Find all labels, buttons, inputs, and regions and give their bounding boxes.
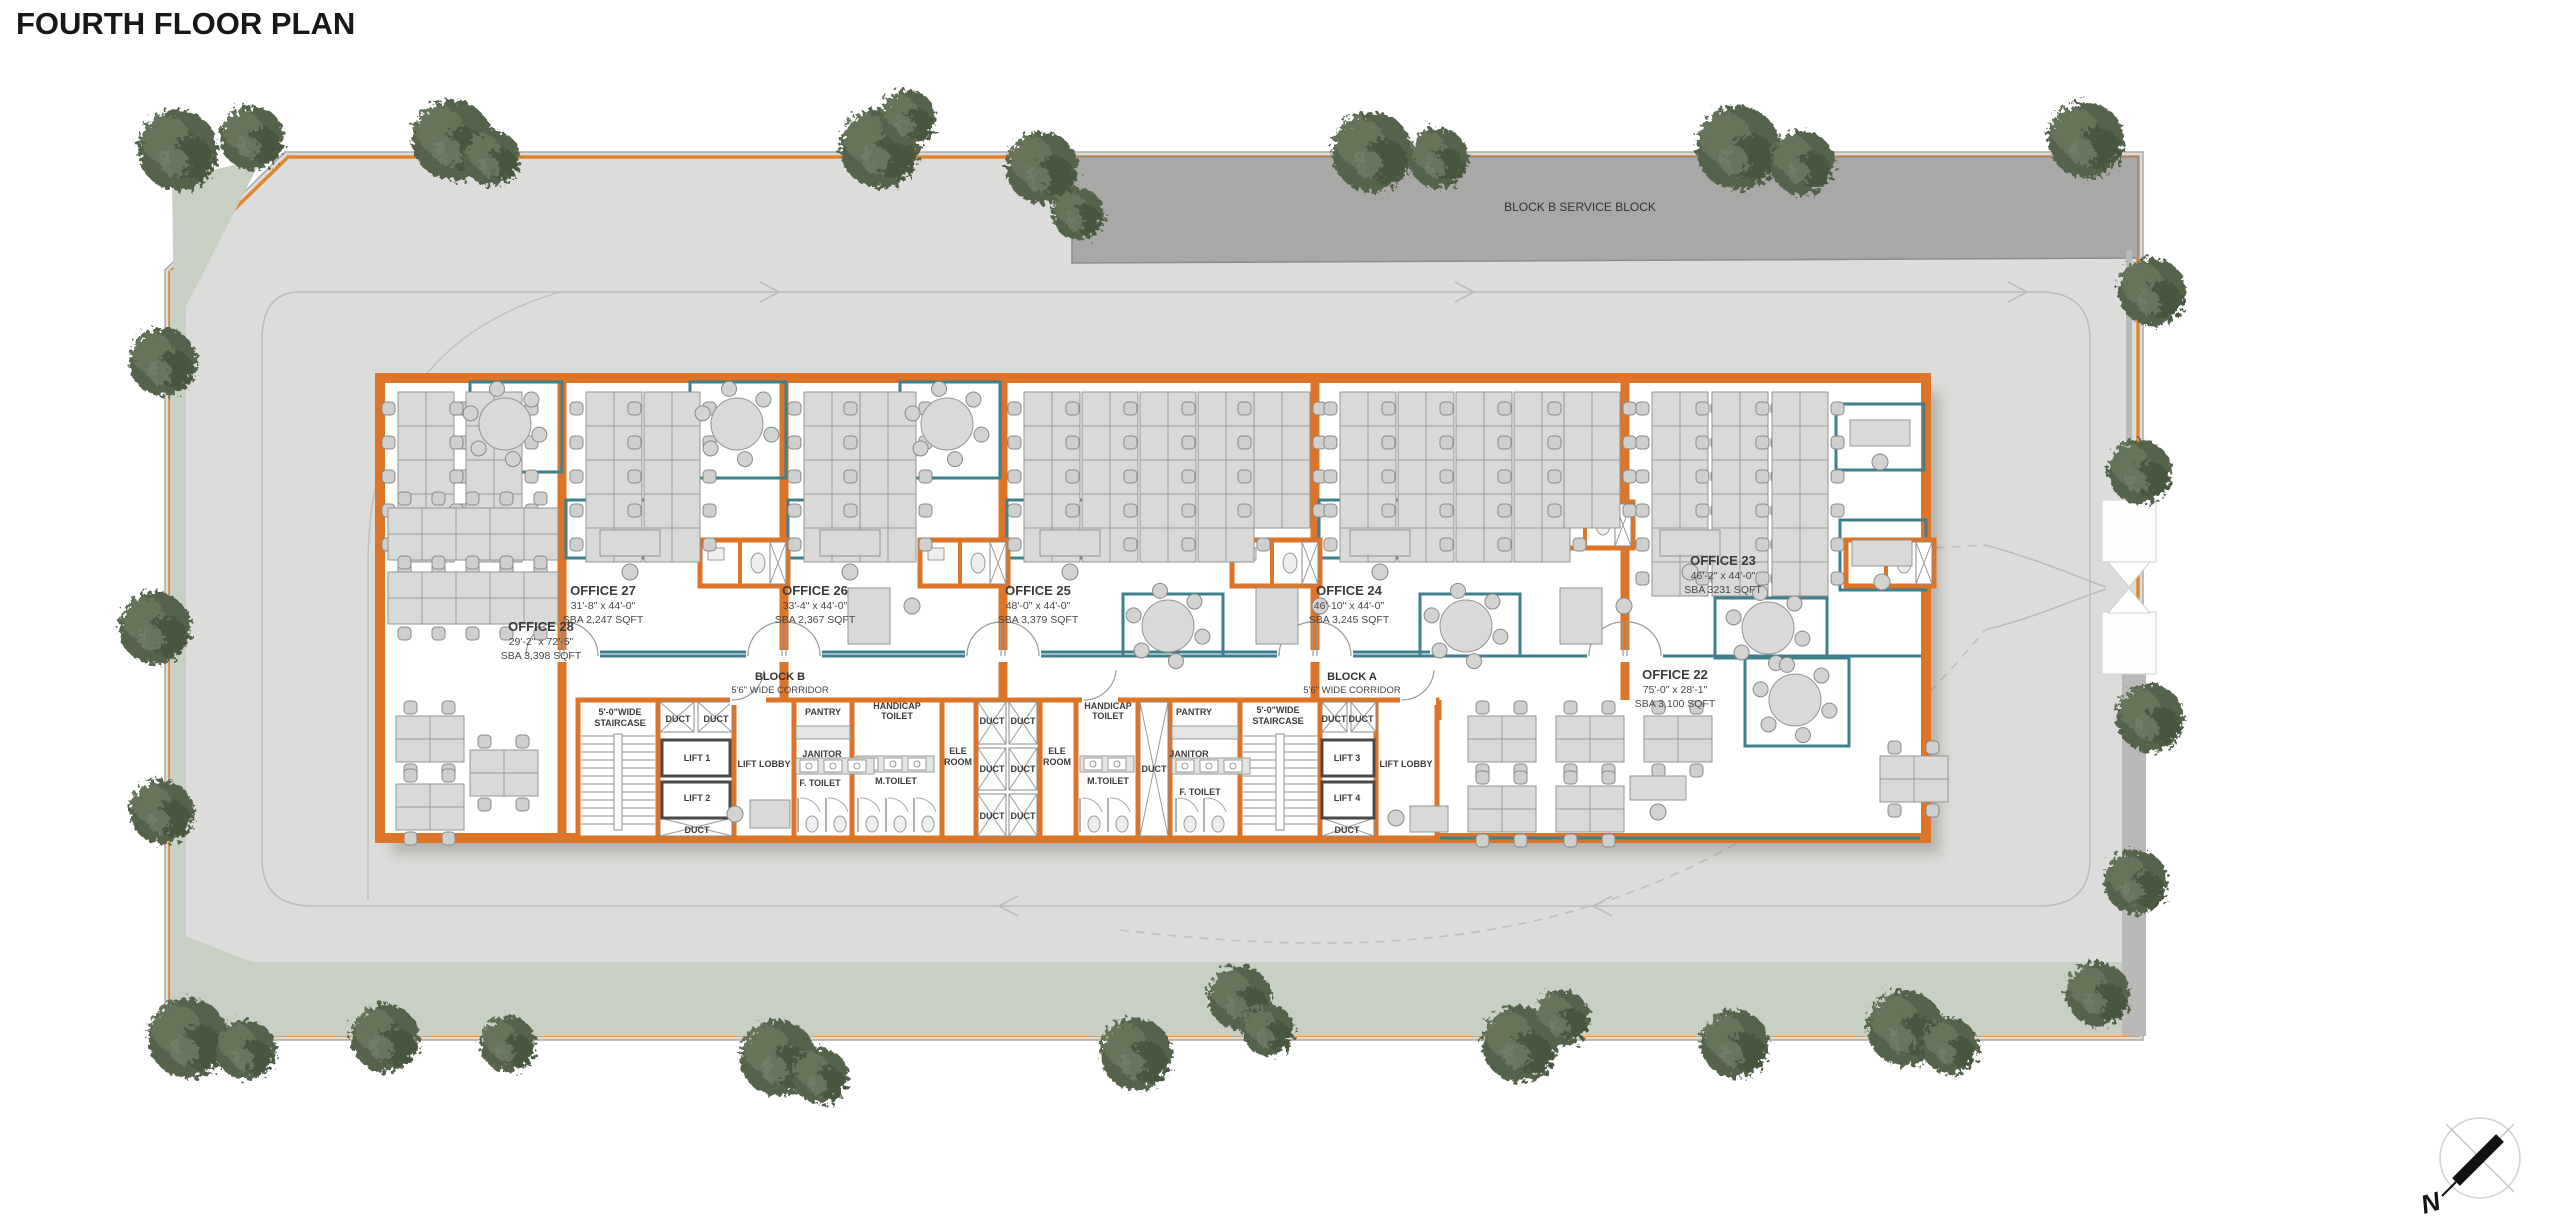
core-room (1040, 700, 1076, 838)
chair (842, 564, 858, 580)
office-22-label: OFFICE 22 75'-0" x 28'-1" SBA 3,100 SQFT (1635, 667, 1716, 710)
chair (1324, 504, 1337, 517)
chair (1548, 470, 1561, 483)
office-26-label: OFFICE 26 33'-4" x 44'-0" SBA 2,367 SQFT (775, 583, 856, 626)
tree (1100, 1018, 1172, 1090)
chair (1636, 436, 1649, 449)
meeting-table (1440, 600, 1492, 652)
chair (1616, 598, 1632, 614)
tree (1701, 1010, 1769, 1078)
chair (1187, 594, 1202, 609)
chair (478, 798, 491, 811)
chair (966, 392, 981, 407)
desk (750, 800, 790, 828)
chair (844, 436, 857, 449)
chair (1548, 504, 1561, 517)
floor-plan-drawing: N BLOCK B SERVICE BLOCK OFFICE 28 29'-2"… (0, 0, 2560, 1226)
chair (1324, 402, 1337, 415)
office-28-area: SBA 3,398 SQFT (501, 650, 582, 662)
duct-label: DUCT (1335, 825, 1360, 835)
office-27-area: SBA 2,247 SQFT (563, 614, 644, 626)
chair (1636, 470, 1649, 483)
office-26-dims: 33'-4" x 44'-0" (783, 600, 848, 612)
chair (1008, 538, 1021, 551)
chair (1548, 436, 1561, 449)
chair (1787, 596, 1802, 611)
tree (792, 1048, 848, 1104)
chair (764, 427, 779, 442)
chair (1696, 402, 1709, 415)
chair (1008, 436, 1021, 449)
chair (1636, 572, 1649, 585)
tree (880, 90, 936, 146)
tree (2116, 684, 2184, 752)
chair (1324, 470, 1337, 483)
chair (432, 627, 445, 640)
chair (570, 504, 583, 517)
chair (398, 627, 411, 640)
chair (1498, 538, 1511, 551)
chair (450, 470, 463, 483)
chair (1795, 728, 1810, 743)
chair (442, 769, 455, 782)
tree (464, 130, 520, 186)
staircase-a-label-1: 5'-0"WIDE (1257, 705, 1300, 715)
chair (382, 436, 395, 449)
chair (1926, 741, 1939, 754)
meeting-table (1142, 600, 1194, 652)
chair (1636, 402, 1649, 415)
chair (1696, 504, 1709, 517)
core-room (942, 700, 976, 838)
chair (788, 470, 801, 483)
chair (466, 492, 479, 505)
chair (1238, 436, 1251, 449)
chair (703, 538, 716, 551)
tree (130, 780, 194, 844)
office-24-area: SBA 3,245 SQFT (1309, 614, 1390, 626)
chair (1168, 654, 1183, 669)
chair (1623, 402, 1636, 415)
chair (1926, 804, 1939, 817)
office-23-area: SBA 3231 SQFT (1684, 584, 1762, 596)
chair (450, 402, 463, 415)
tree (1242, 1004, 1294, 1056)
toilet (1283, 553, 1297, 573)
chair (1382, 402, 1395, 415)
chair (1874, 574, 1890, 590)
desk (1256, 588, 1298, 644)
toilet (1116, 816, 1128, 832)
chair (1440, 470, 1453, 483)
lift-2-label: LIFT 2 (684, 793, 711, 803)
chair (905, 406, 920, 421)
chair (737, 452, 752, 467)
desk (1350, 530, 1410, 556)
tree (1332, 112, 1412, 192)
toilet (971, 553, 985, 573)
desk (1560, 588, 1602, 644)
chair (727, 806, 743, 822)
sink (1224, 760, 1242, 772)
office-28-dims: 29'-2" x 72'-5" (509, 636, 574, 648)
tree (1770, 131, 1834, 195)
chair (1485, 594, 1500, 609)
tree (216, 1020, 276, 1080)
office-24-name: OFFICE 24 (1316, 583, 1383, 598)
chair (1564, 771, 1577, 784)
chair (1424, 608, 1439, 623)
sink (908, 758, 926, 770)
office-27-dims: 31'-8" x 44'-0" (571, 600, 636, 612)
chair (1238, 470, 1251, 483)
chair (919, 538, 932, 551)
chair (1872, 454, 1888, 470)
chair (1008, 402, 1021, 415)
chair (1066, 504, 1079, 517)
m-toilet-b-label: M.TOILET (875, 776, 917, 786)
chair (1814, 668, 1829, 683)
chair (478, 735, 491, 748)
duct-label: DUCT (1322, 714, 1347, 724)
block-b-name: BLOCK B (755, 671, 805, 683)
chair (1372, 564, 1388, 580)
chair (947, 452, 962, 467)
block-a-width: 5'6" WIDE CORRIDOR (1303, 685, 1401, 696)
chair (1182, 504, 1195, 517)
tree (138, 110, 218, 190)
toilet (751, 553, 765, 573)
chair (904, 598, 920, 614)
chair (1623, 436, 1636, 449)
ele-room-b-label-1: ELE (949, 746, 967, 756)
chair (1498, 436, 1511, 449)
tree (351, 1004, 419, 1072)
desk (820, 530, 880, 556)
chair (1652, 764, 1665, 777)
chair (432, 492, 445, 505)
chair (1514, 771, 1527, 784)
tree (119, 592, 191, 664)
chair (1831, 402, 1844, 415)
office-25-area: SBA 3,379 SQFT (998, 614, 1079, 626)
chair (628, 436, 641, 449)
chair (1257, 538, 1270, 551)
pantry-a-label: PANTRY (1176, 707, 1212, 717)
office-24-dims: 46'-10" x 44'-0" (1314, 600, 1385, 612)
chair (1602, 701, 1615, 714)
chair (1182, 436, 1195, 449)
toilet (1184, 816, 1196, 832)
chair (1696, 470, 1709, 483)
office-22-area: SBA 3,100 SQFT (1635, 698, 1716, 710)
chair (1238, 504, 1251, 517)
chair (1324, 436, 1337, 449)
chair (1476, 834, 1489, 847)
chair (1650, 804, 1666, 820)
chair (1795, 631, 1810, 646)
desk (1410, 806, 1448, 832)
office-22-dims: 75'-0" x 28'-1" (1643, 684, 1708, 696)
chair (1476, 701, 1489, 714)
handicap-toilet-a-label-1: HANDICAP (1084, 701, 1132, 711)
chair (844, 470, 857, 483)
desk (1630, 776, 1686, 800)
chair (466, 627, 479, 640)
chair (1756, 538, 1769, 551)
chair (442, 701, 455, 714)
staircase-b-label-1: 5'-0"WIDE (599, 707, 642, 717)
toilet (1088, 816, 1100, 832)
office-27-label: OFFICE 27 31'-8" x 44'-0" SBA 2,247 SQFT (563, 583, 644, 626)
office-25-name: OFFICE 25 (1005, 583, 1071, 598)
duct-label: DUCT (980, 716, 1005, 726)
tree (220, 106, 284, 170)
chair (1690, 764, 1703, 777)
floor-plan-page: FOURTH FLOOR PLAN (0, 0, 2560, 1226)
tree (129, 328, 197, 396)
sink (1108, 758, 1126, 770)
duct-label: DUCT (1011, 811, 1036, 821)
chair (1753, 682, 1768, 697)
chair (516, 798, 529, 811)
tree (1408, 128, 1468, 188)
staircase-b-label-2: STAIRCASE (594, 718, 645, 728)
chair (1066, 470, 1079, 483)
chair (1831, 572, 1844, 585)
m-toilet-a-label: M.TOILET (1087, 776, 1129, 786)
duct-label: DUCT (1011, 764, 1036, 774)
desk (600, 530, 660, 556)
chair (628, 470, 641, 483)
chair (1498, 402, 1511, 415)
chair (382, 402, 395, 415)
chair (1324, 538, 1337, 551)
sink (824, 760, 842, 772)
office-24-label: OFFICE 24 46'-10" x 44'-0" SBA 3,245 SQF… (1309, 583, 1390, 626)
chair (1602, 834, 1615, 847)
chair (1514, 701, 1527, 714)
meeting-table (479, 398, 531, 450)
desk (1040, 530, 1100, 556)
chair (1623, 504, 1636, 517)
chair (1564, 834, 1577, 847)
chair (1440, 436, 1453, 449)
f-toilet-a-label: F. TOILET (1179, 787, 1221, 797)
chair (1124, 402, 1137, 415)
building (380, 378, 1948, 847)
chair (1623, 470, 1636, 483)
duct-label: DUCT (1011, 716, 1036, 726)
duct-label: DUCT (980, 811, 1005, 821)
chair (844, 504, 857, 517)
handicap-toilet-a-label-2: TOILET (1092, 711, 1124, 721)
lift-4-label: LIFT 4 (1334, 793, 1361, 803)
lift-1-label: LIFT 1 (684, 753, 711, 763)
chair (788, 538, 801, 551)
tree (1696, 106, 1780, 190)
tree (2108, 440, 2172, 504)
chair (1182, 470, 1195, 483)
chair (505, 452, 520, 467)
chair (398, 556, 411, 569)
chair (1831, 504, 1844, 517)
tree (148, 998, 228, 1078)
chair (398, 492, 411, 505)
pantry-b-label: PANTRY (805, 707, 841, 717)
chair (703, 470, 716, 483)
chair (404, 701, 417, 714)
chair (570, 436, 583, 449)
chair (1382, 436, 1395, 449)
chair (1756, 504, 1769, 517)
staircase-a-label-2: STAIRCASE (1252, 716, 1303, 726)
chair (1573, 538, 1586, 551)
chair (1696, 436, 1709, 449)
chair (703, 441, 718, 456)
chair (919, 470, 932, 483)
tree (480, 1016, 536, 1072)
ele-room-b-label-2: ROOM (944, 757, 972, 767)
ele-room-a-label-1: ELE (1048, 746, 1066, 756)
chair (844, 402, 857, 415)
office-23-dims: 46'-2" x 44'-0" (1691, 570, 1756, 582)
chair (1636, 504, 1649, 517)
tree (1922, 1018, 1978, 1074)
chair (1440, 402, 1453, 415)
block-a-name: BLOCK A (1327, 671, 1377, 683)
chair (1134, 643, 1149, 658)
chair (1066, 402, 1079, 415)
toilet (894, 816, 906, 832)
chair (532, 427, 547, 442)
chair (500, 492, 513, 505)
chair (628, 402, 641, 415)
chair (1126, 608, 1141, 623)
chair (1466, 654, 1481, 669)
chair (1124, 538, 1137, 551)
service-block-label: BLOCK B SERVICE BLOCK (1504, 200, 1656, 214)
office-23-name: OFFICE 23 (1690, 553, 1756, 568)
office-25-dims: 48'-0" x 44'-0" (1006, 600, 1071, 612)
tree (2104, 850, 2168, 914)
meeting-table (1769, 674, 1821, 726)
f-toilet-b-label: F. TOILET (799, 778, 841, 788)
chair (788, 504, 801, 517)
chair (1602, 771, 1615, 784)
janitor-b-label: JANITOR (802, 749, 842, 759)
chair (382, 470, 395, 483)
chair (622, 564, 638, 580)
chair (1636, 538, 1649, 551)
chair (570, 402, 583, 415)
desk (1852, 540, 1912, 566)
chair (490, 381, 505, 396)
tree (1534, 990, 1590, 1046)
office-26-area: SBA 2,367 SQFT (775, 614, 856, 626)
sink (1084, 758, 1102, 770)
chair (1066, 436, 1079, 449)
chair (466, 556, 479, 569)
chair (534, 492, 547, 505)
chair (756, 392, 771, 407)
chair (1451, 583, 1466, 598)
chair (1008, 470, 1021, 483)
chair (404, 832, 417, 845)
chair (524, 392, 539, 407)
north-compass: N (2417, 1118, 2520, 1220)
chair (1734, 645, 1749, 660)
chair (516, 735, 529, 748)
toilet (922, 816, 934, 832)
chair (1440, 538, 1453, 551)
duct-label: DUCT (704, 714, 729, 724)
chair (525, 470, 538, 483)
chair (913, 441, 928, 456)
chair (404, 769, 417, 782)
chair (1498, 504, 1511, 517)
north-arrow-icon (2456, 1138, 2500, 1182)
duct-label: DUCT (1349, 714, 1374, 724)
sink (884, 758, 902, 770)
chair (1514, 834, 1527, 847)
lift-lobby-a-label: LIFT LOBBY (1380, 759, 1433, 769)
chair (1756, 402, 1769, 415)
sink (1200, 760, 1218, 772)
block-b-width: 5'6" WIDE CORRIDOR (731, 685, 829, 696)
toilet (806, 816, 818, 832)
toilet (834, 816, 846, 832)
chair (432, 556, 445, 569)
office-27-name: OFFICE 27 (570, 583, 636, 598)
chair (1831, 538, 1844, 551)
tree (2048, 102, 2124, 178)
chair (1822, 703, 1837, 718)
chair (1124, 504, 1137, 517)
chair (442, 832, 455, 845)
chair (1761, 717, 1776, 732)
duct-label: DUCT (980, 764, 1005, 774)
chair (1195, 629, 1210, 644)
office-22-name: OFFICE 22 (1642, 667, 1708, 682)
office-23-label: OFFICE 23 46'-2" x 44'-0" SBA 3231 SQFT (1684, 553, 1762, 596)
meeting-table (921, 398, 973, 450)
chair (1440, 504, 1453, 517)
chair (919, 504, 932, 517)
chair (1382, 504, 1395, 517)
chair (1888, 741, 1901, 754)
chair (1726, 610, 1741, 625)
chair (1780, 657, 1795, 672)
chair (1388, 810, 1404, 826)
chair (1756, 470, 1769, 483)
handicap-toilet-b-label-2: TOILET (881, 711, 913, 721)
sink (848, 760, 866, 772)
chair (1238, 402, 1251, 415)
tree (1052, 188, 1104, 240)
chair (1548, 402, 1561, 415)
chair (695, 406, 710, 421)
chair (722, 381, 737, 396)
chair (1182, 538, 1195, 551)
meeting-table (711, 398, 763, 450)
chair (1476, 771, 1489, 784)
chair (1564, 701, 1577, 714)
desk (1850, 420, 1910, 446)
chair (534, 556, 547, 569)
chair (1153, 583, 1168, 598)
chair (570, 538, 583, 551)
